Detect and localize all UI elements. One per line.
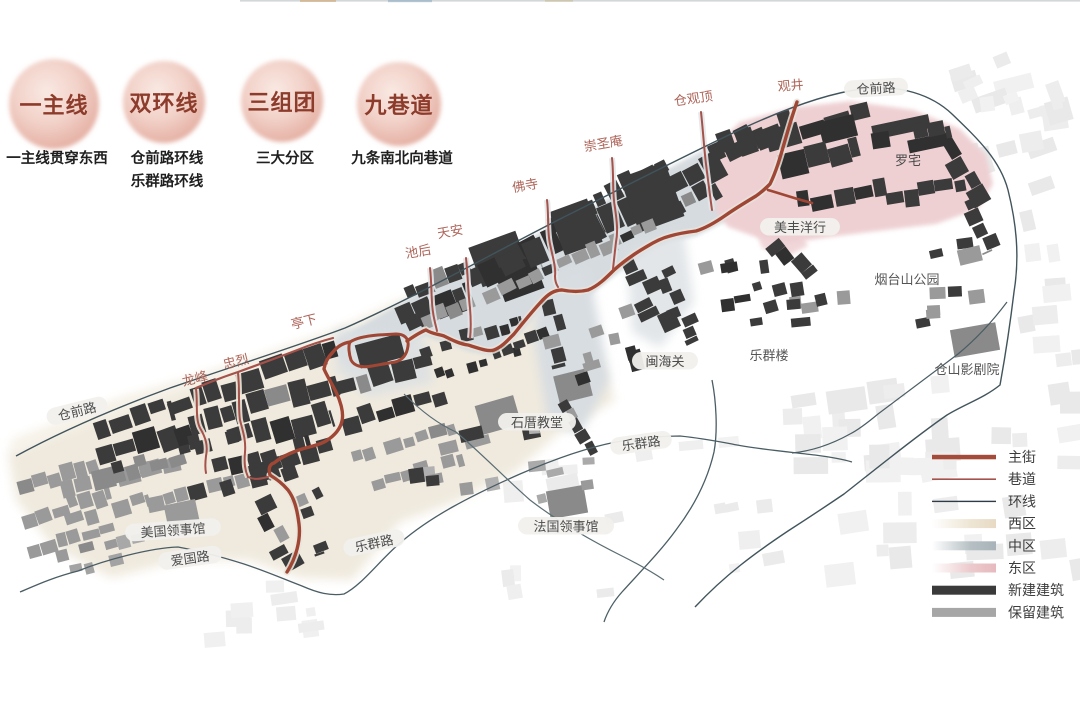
svg-text:石厝教堂: 石厝教堂 bbox=[511, 415, 563, 430]
svg-text:烟台山公园: 烟台山公园 bbox=[874, 272, 939, 287]
svg-text:仓山影剧院: 仓山影剧院 bbox=[934, 362, 999, 377]
svg-text:三大分区: 三大分区 bbox=[256, 149, 314, 167]
svg-text:法国领事馆: 法国领事馆 bbox=[533, 519, 598, 534]
svg-text:九条南北向巷道: 九条南北向巷道 bbox=[350, 149, 453, 167]
svg-text:一主线: 一主线 bbox=[19, 93, 88, 118]
svg-text:新建建筑: 新建建筑 bbox=[1008, 582, 1064, 598]
svg-text:中区: 中区 bbox=[1008, 538, 1036, 554]
svg-text:乐群路环线: 乐群路环线 bbox=[131, 172, 204, 190]
svg-text:仓前路: 仓前路 bbox=[856, 80, 896, 97]
svg-text:保留建筑: 保留建筑 bbox=[1008, 604, 1064, 620]
svg-text:东区: 东区 bbox=[1008, 560, 1036, 576]
svg-text:一主线贯穿东西: 一主线贯穿东西 bbox=[6, 149, 108, 167]
svg-text:乐群楼: 乐群楼 bbox=[749, 348, 788, 363]
svg-text:闽海关: 闽海关 bbox=[645, 354, 684, 369]
svg-text:三组团: 三组团 bbox=[247, 90, 316, 115]
svg-text:罗宅: 罗宅 bbox=[895, 153, 921, 168]
svg-text:双环线: 双环线 bbox=[129, 91, 198, 116]
svg-text:环线: 环线 bbox=[1008, 493, 1036, 509]
svg-text:主街: 主街 bbox=[1008, 449, 1036, 465]
svg-text:巷道: 巷道 bbox=[1008, 471, 1036, 487]
svg-text:美丰洋行: 美丰洋行 bbox=[774, 220, 826, 235]
svg-text:仓前路环线: 仓前路环线 bbox=[130, 149, 204, 167]
svg-text:观井: 观井 bbox=[777, 77, 804, 94]
svg-text:九巷道: 九巷道 bbox=[363, 93, 433, 118]
svg-text:西区: 西区 bbox=[1008, 516, 1036, 532]
